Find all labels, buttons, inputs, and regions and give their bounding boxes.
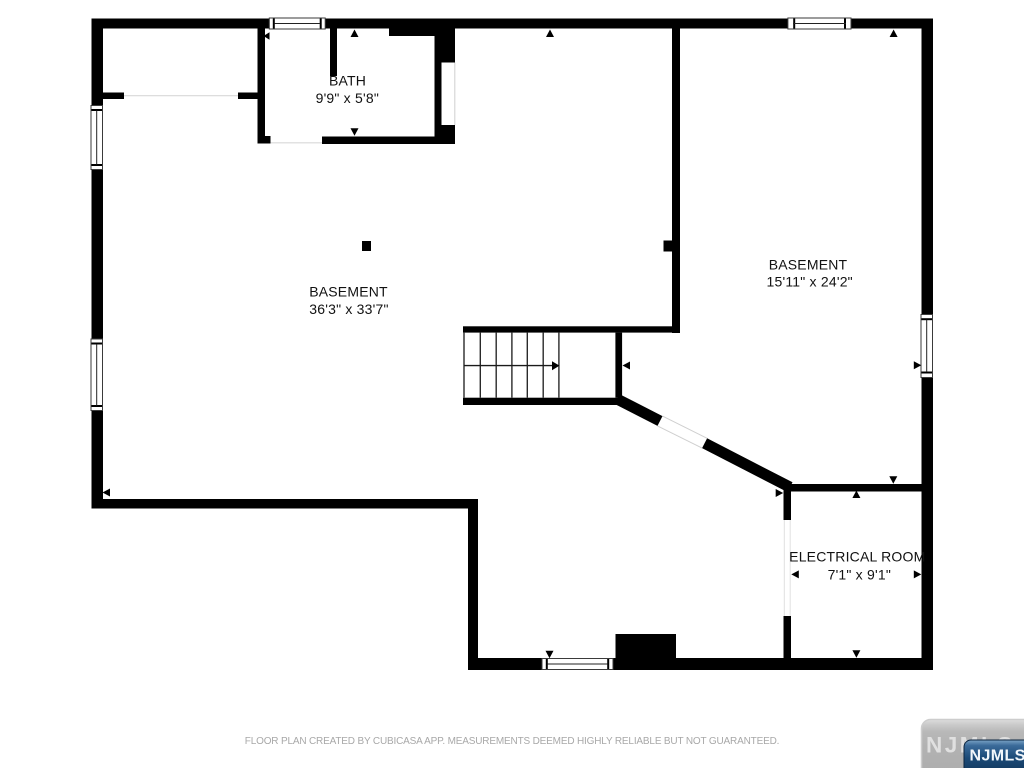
svg-text:36'3" x 33'7": 36'3" x 33'7"	[309, 301, 388, 317]
svg-text:15'11" x 24'2": 15'11" x 24'2"	[767, 273, 853, 289]
svg-text:BASEMENT: BASEMENT	[309, 284, 388, 300]
svg-text:7'1" x 9'1": 7'1" x 9'1"	[828, 567, 891, 583]
svg-text:FLOOR PLAN CREATED BY CUBICASA: FLOOR PLAN CREATED BY CUBICASA APP. MEAS…	[245, 736, 780, 747]
svg-text:BATH: BATH	[329, 73, 366, 89]
svg-text:9'9" x 5'8": 9'9" x 5'8"	[316, 90, 379, 106]
svg-text:BASEMENT: BASEMENT	[769, 256, 848, 272]
svg-text:NJMLS: NJMLS	[970, 747, 1024, 764]
svg-text:ELECTRICAL ROOM: ELECTRICAL ROOM	[789, 549, 925, 565]
